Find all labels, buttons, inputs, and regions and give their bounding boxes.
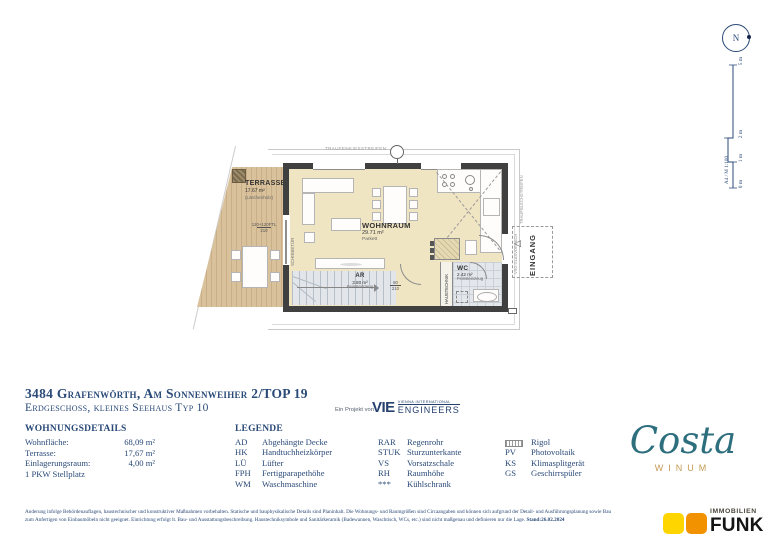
dining-chair xyxy=(372,200,381,209)
cooktop-burner xyxy=(450,182,455,187)
funk-yellow-square-icon xyxy=(663,513,684,534)
legend-column-1: ADAbgehängte Decke HKHandtuchheizkörper … xyxy=(235,437,332,489)
terrace-label: TERRASSE 17.67 m² (Lärchenholz) xyxy=(245,180,286,200)
costa-winum-logo: Costa WINUM xyxy=(616,420,750,473)
legend-heading: LEGENDE xyxy=(235,424,283,434)
funk-orange-square-icon xyxy=(686,513,707,534)
scale-tick-1m: 1 m xyxy=(738,150,744,166)
traufenkies-label: TRAUFENKIESSTREIFEN xyxy=(325,146,386,151)
desk-chair xyxy=(430,241,434,246)
details-table: Wohnfläche:68,09 m² Terrasse:17,67 m² Ei… xyxy=(25,437,155,479)
page-title: 3484 Grafenwörth, Am Sonnenweiher 2/TOP … xyxy=(25,386,308,402)
immobilien-funk-logo: IMMOBILIEN FUNK xyxy=(663,509,764,535)
washing-machine xyxy=(456,291,468,303)
scale-bar: 0 m 1 m 2 m 5 m A4 / M 1:100 xyxy=(715,55,760,200)
terrace-chair xyxy=(270,272,280,282)
desk-chair xyxy=(430,248,434,253)
ar-door-dimension: 80 210 xyxy=(388,280,403,291)
details-heading: WOHNUNGSDETAILS xyxy=(25,424,127,434)
rainpipe-stem xyxy=(397,159,398,164)
dining-table xyxy=(383,186,407,224)
scale-tick-5m: 5 m xyxy=(738,53,744,69)
desk xyxy=(434,238,460,260)
armchair xyxy=(304,232,315,243)
terrace-chair xyxy=(231,250,241,260)
sliding-door-label: SCHIEBETÜR xyxy=(290,218,295,266)
sheet-format-label: A4 / M 1:100 xyxy=(724,142,730,198)
haustechnik-label: HAUSTECHNIK xyxy=(444,264,449,304)
canopy-label: VSG GLASVORDACH xyxy=(513,230,518,274)
washbasin xyxy=(473,289,499,302)
details-note: 1 PKW Stellplatz xyxy=(25,469,155,480)
vie-abbr: VIE xyxy=(372,399,395,416)
traufblech-label: TRAUFBLECHSTREIFEN xyxy=(519,168,524,224)
north-indicator: N xyxy=(719,22,753,56)
terrace-table xyxy=(242,246,268,288)
partner-prefix: Ein Projekt von xyxy=(335,407,374,413)
rainpipe-symbol xyxy=(390,145,404,159)
kitchen-tap xyxy=(469,187,473,191)
washbasin-bowl xyxy=(477,292,497,302)
entrance-label: EINGANG xyxy=(528,228,537,276)
fineprint-line-2: zum Anfertigen von Einbaumöbeln nicht ge… xyxy=(25,517,660,525)
legend-column-3: Rigol PVPhotovoltaik KSKlimasplitgerät G… xyxy=(505,437,584,479)
sliding-door-leaf xyxy=(285,220,287,264)
vie-bottom-line: ENGINEERS xyxy=(398,405,460,415)
dining-chair xyxy=(372,188,381,197)
terrace-post xyxy=(232,169,246,183)
north-circle-icon: N xyxy=(722,24,750,52)
side-chair xyxy=(465,240,477,255)
terrace-chair xyxy=(270,250,280,260)
wc-label: WC 2.42 m² Feinsteinzeug xyxy=(457,265,483,282)
dining-chair xyxy=(409,188,418,197)
dining-chair xyxy=(372,212,381,221)
sideboard-detail xyxy=(340,263,362,266)
floorplan-sheet: N 0 m 1 m 2 m 5 m A4 / M 1:100 TERRASSE … xyxy=(0,0,770,545)
terrace-chair xyxy=(231,272,241,282)
costa-script: Costa xyxy=(616,420,750,462)
north-dot-icon xyxy=(747,35,751,39)
dining-chair xyxy=(409,212,418,221)
fridge xyxy=(483,198,500,216)
desk-chair xyxy=(430,255,434,260)
fineprint-line-1: Änderung infolge Behördenauflagen, haust… xyxy=(25,509,660,517)
legend-column-2: RARRegenrohr STUKSturzunterkante VSVorsa… xyxy=(378,437,461,489)
vie-engineers-logo: VIE VIENNA INTERNATIONAL ENGINEERS xyxy=(372,399,460,416)
ar-label: AR 3.80 m² Feinsteinzeug xyxy=(337,273,383,290)
haustechnik-shaft: HAUSTECHNIK xyxy=(440,262,453,306)
corner-symbol xyxy=(508,308,517,314)
scale-tick-0m: 0 m xyxy=(738,176,744,192)
details-row: Einlagerungsraum:4,00 m² xyxy=(25,458,155,469)
page-subtitle: Erdgeschoss, kleines Seehaus Typ 10 xyxy=(25,402,209,414)
cooktop-burner xyxy=(450,174,455,179)
dining-chair xyxy=(409,200,418,209)
costa-sub: WINUM xyxy=(616,463,750,473)
floor-plan: TERRASSE 17.67 m² (Lärchenholz) 120+120F… xyxy=(185,138,585,350)
window xyxy=(313,163,365,170)
scale-tick-2m: 2 m xyxy=(738,126,744,142)
funk-funk-text: FUNK xyxy=(710,516,764,535)
rigol-hatch-icon xyxy=(505,440,523,447)
details-row: Wohnfläche:68,09 m² xyxy=(25,437,155,448)
wohnraum-label: WOHNRAUM 29.71 m² Parkett xyxy=(362,222,411,242)
coffee-table xyxy=(331,218,361,231)
details-row: Terrasse:17,67 m² xyxy=(25,448,155,459)
kitchen-sink xyxy=(465,175,475,185)
sofa xyxy=(302,178,354,193)
sofa-chaise xyxy=(302,193,315,225)
sideboard xyxy=(315,258,385,269)
fineprint-stand: Stand:26.02.2024 xyxy=(526,517,564,523)
door-dimension: 120+120FTL 210 xyxy=(241,222,287,233)
